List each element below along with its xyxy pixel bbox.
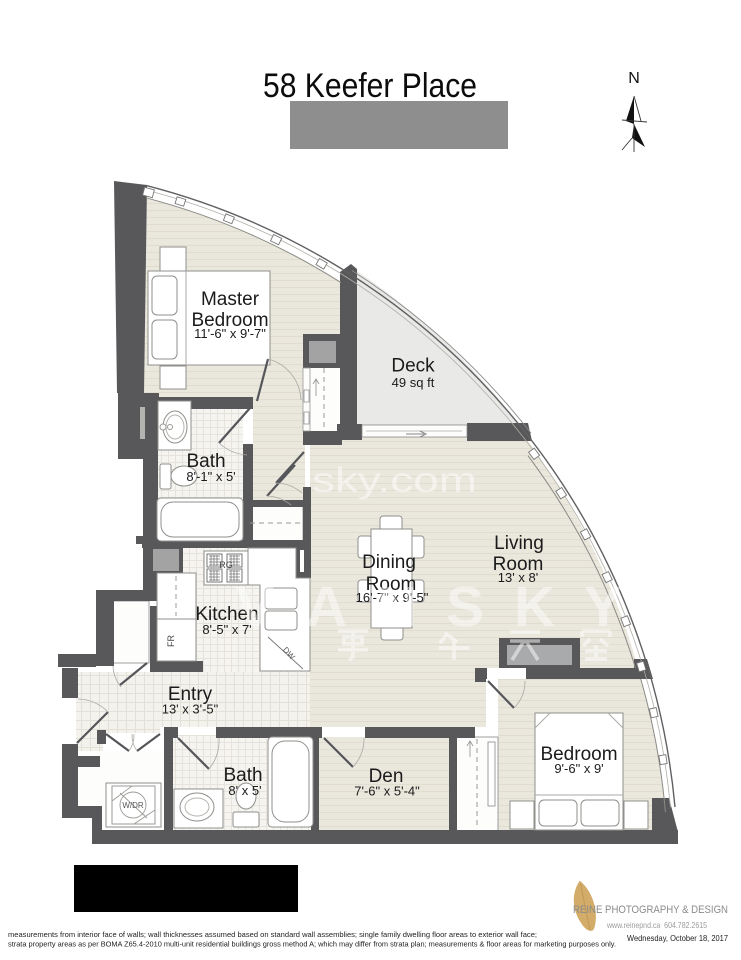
svg-text:measurements from interior fac: measurements from interior face of walls… — [8, 930, 537, 939]
svg-text:FR: FR — [166, 635, 176, 647]
svg-text:Wednesday, October 18, 2017: Wednesday, October 18, 2017 — [627, 933, 728, 943]
svg-text:49 sq ft: 49 sq ft — [392, 375, 435, 390]
svg-text:Dining: Dining — [362, 552, 416, 573]
svg-text:N: N — [376, 575, 417, 639]
svg-text:11'-6" x 9'-7": 11'-6" x 9'-7" — [194, 326, 266, 341]
svg-text:Master: Master — [201, 289, 260, 310]
svg-text:Deck: Deck — [391, 356, 435, 377]
svg-text:V: V — [236, 575, 274, 639]
svg-text:9'-6" x 9': 9'-6" x 9' — [554, 761, 603, 776]
svg-text:RG: RG — [219, 560, 233, 570]
svg-text:N: N — [628, 70, 640, 87]
svg-text:Living: Living — [494, 533, 544, 554]
svg-text:strata property areas as per B: strata property areas as per BOMA Z65.4-… — [8, 940, 616, 949]
svg-text:13' x 3'-5": 13' x 3'-5" — [162, 702, 219, 717]
svg-text:8' x 5': 8' x 5' — [228, 783, 261, 798]
svg-text:S: S — [446, 575, 484, 639]
svg-text:W/DR: W/DR — [122, 801, 144, 810]
svg-text:sky.com: sky.com — [312, 461, 477, 500]
svg-text:K: K — [514, 575, 555, 639]
svg-text:REINE PHOTOGRAPHY & DESIGN: REINE PHOTOGRAPHY & DESIGN — [573, 904, 728, 916]
svg-text:www.reinepnd.ca 604.782.2615: www.reinepnd.ca 604.782.2615 — [606, 920, 707, 930]
svg-text:7'-6" x 5'-4": 7'-6" x 5'-4" — [354, 784, 420, 799]
svg-text:58 Keefer Place: 58 Keefer Place — [263, 67, 477, 105]
svg-text:8'-1" x 5': 8'-1" x 5' — [186, 469, 235, 484]
